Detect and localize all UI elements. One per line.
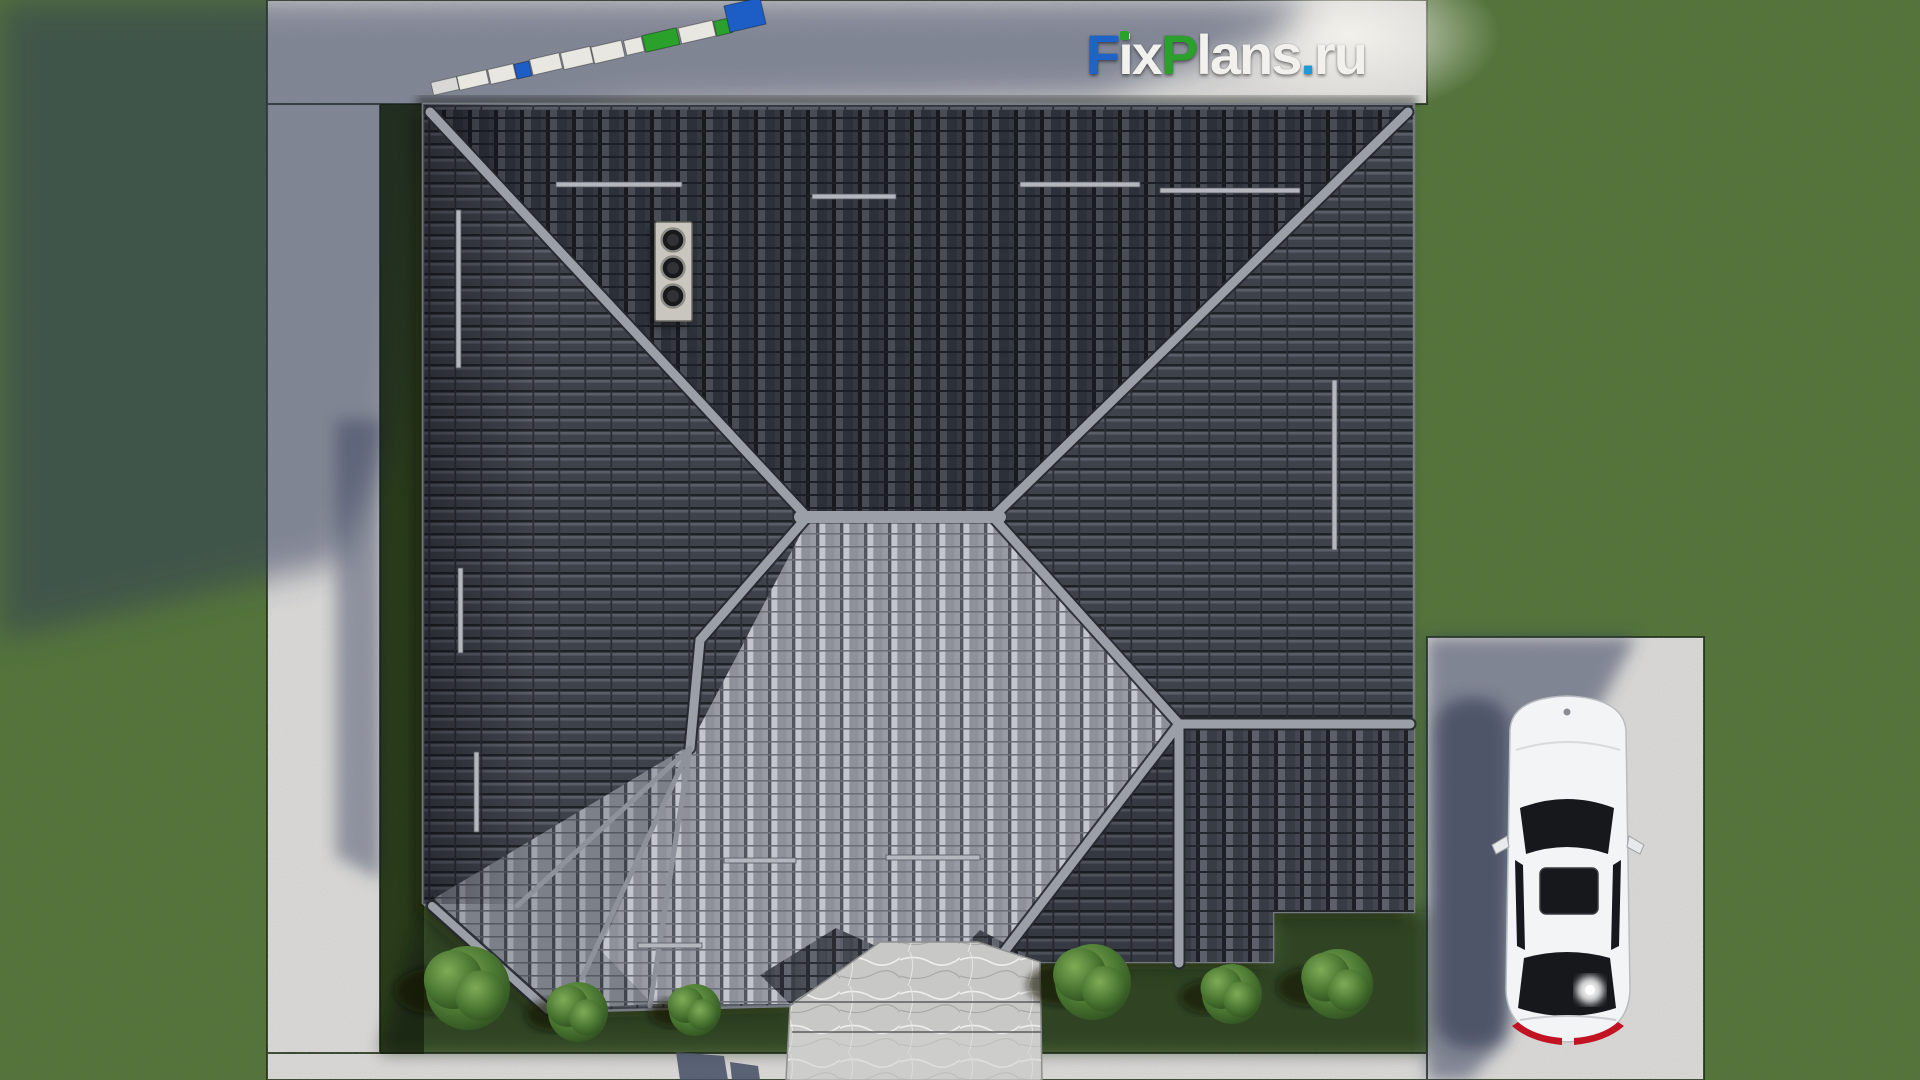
logo-letter-x: x: [1132, 22, 1161, 87]
snow-guard-bar: [724, 858, 796, 863]
logo-tld: ru: [1314, 22, 1366, 87]
logo-letter-f: F: [1086, 22, 1118, 87]
logo-i-dot: [1120, 31, 1129, 40]
watermark-logo: FixPlans.ru: [1086, 22, 1426, 84]
snow-guard-bar: [556, 182, 682, 187]
snow-guard-bar: [1332, 380, 1337, 550]
bush-foliage: [569, 999, 605, 1035]
chimney-flues: [662, 229, 685, 308]
roof: [416, 104, 1414, 1019]
ground-logo-block-blue: [514, 61, 532, 79]
scene-canvas: [0, 0, 1920, 1080]
snow-guard-bar: [458, 568, 463, 653]
logo-letter-i: i: [1118, 22, 1132, 87]
house-shadow-left-band: [336, 420, 382, 880]
car-sun-glint-core: [1585, 985, 1595, 995]
logo-letters-lans: lans: [1196, 22, 1300, 87]
car-emblem: [1564, 709, 1571, 716]
snow-guard-bar: [886, 855, 980, 860]
porch-landing: [790, 1034, 1040, 1080]
aerial-house-render: FixPlans.ru: [0, 0, 1920, 1080]
snow-guard-bar: [1020, 182, 1140, 187]
car-windshield: [1520, 799, 1614, 854]
sidewalk-shadow-shape: [676, 1052, 728, 1080]
snow-guard-bar: [812, 194, 896, 199]
snow-guard-bar: [638, 943, 702, 948]
bush-foliage: [687, 999, 718, 1030]
car-sunroof: [1540, 868, 1598, 914]
snow-guard-bar: [456, 210, 461, 368]
chimney-flue-inner: [667, 290, 679, 302]
car: [1435, 696, 1644, 1048]
logo-letter-p: P: [1161, 22, 1196, 87]
chimney-flue-inner: [667, 234, 679, 246]
chimney-flue-inner: [667, 262, 679, 274]
chimney: [649, 222, 692, 326]
bush-foliage: [1082, 966, 1128, 1012]
car-shadow: [1435, 698, 1510, 1048]
logo-dot: .: [1300, 22, 1314, 87]
bush-foliage: [1328, 969, 1370, 1011]
bush-foliage: [455, 970, 505, 1020]
bush-foliage: [1223, 981, 1259, 1017]
snow-guard-bar: [1160, 188, 1300, 193]
snow-guard-bar: [474, 752, 479, 832]
